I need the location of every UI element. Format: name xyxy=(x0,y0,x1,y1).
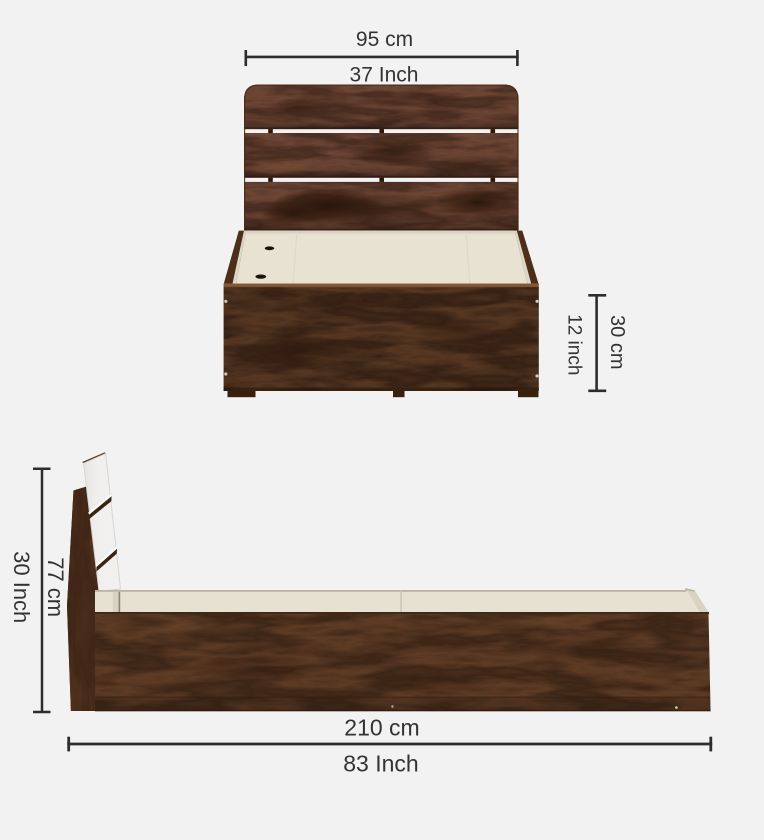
svg-text:83 Inch: 83 Inch xyxy=(343,751,418,777)
svg-text:37 Inch: 37 Inch xyxy=(350,63,419,86)
svg-text:210 cm: 210 cm xyxy=(344,715,419,741)
svg-text:30 Inch: 30 Inch xyxy=(9,551,34,623)
svg-text:95 cm: 95 cm xyxy=(356,28,413,51)
svg-text:30 cm: 30 cm xyxy=(606,315,628,369)
svg-text:12 inch: 12 inch xyxy=(564,314,585,375)
svg-text:77 cm: 77 cm xyxy=(43,557,68,617)
